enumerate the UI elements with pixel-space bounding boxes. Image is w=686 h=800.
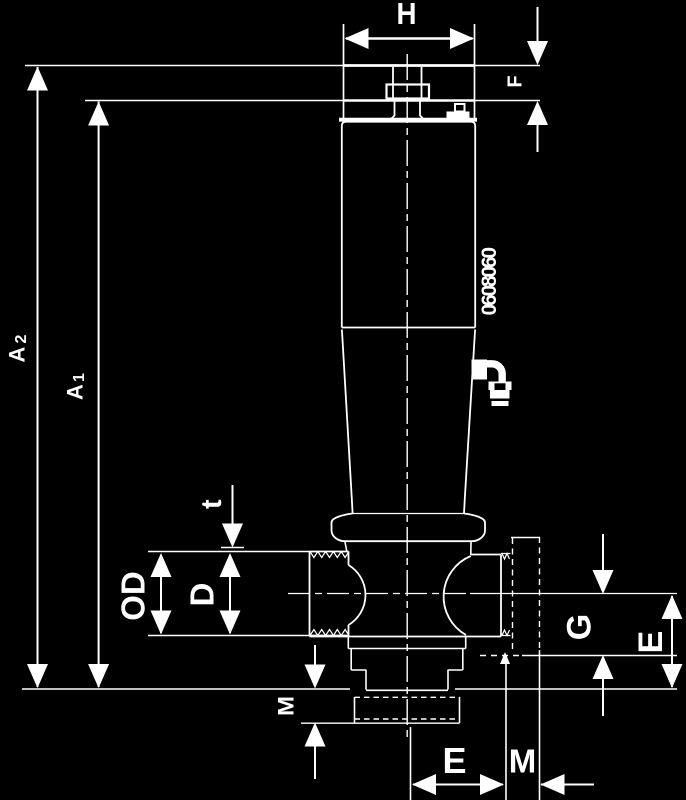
svg-text:A: A (5, 347, 30, 363)
svg-text:G: G (561, 614, 599, 640)
svg-text:M: M (274, 696, 299, 716)
svg-text:OD: OD (115, 571, 152, 621)
svg-text:1: 1 (71, 373, 88, 382)
svg-text:2: 2 (13, 335, 30, 344)
svg-text:0608060: 0608060 (478, 248, 501, 316)
svg-text:t: t (196, 499, 228, 509)
svg-text:D: D (184, 583, 221, 607)
svg-text:H: H (397, 0, 417, 31)
svg-text:F: F (505, 75, 527, 87)
svg-text:E: E (442, 740, 466, 781)
svg-text:E: E (632, 631, 670, 654)
svg-text:A: A (63, 384, 88, 400)
svg-text:M: M (509, 743, 537, 780)
